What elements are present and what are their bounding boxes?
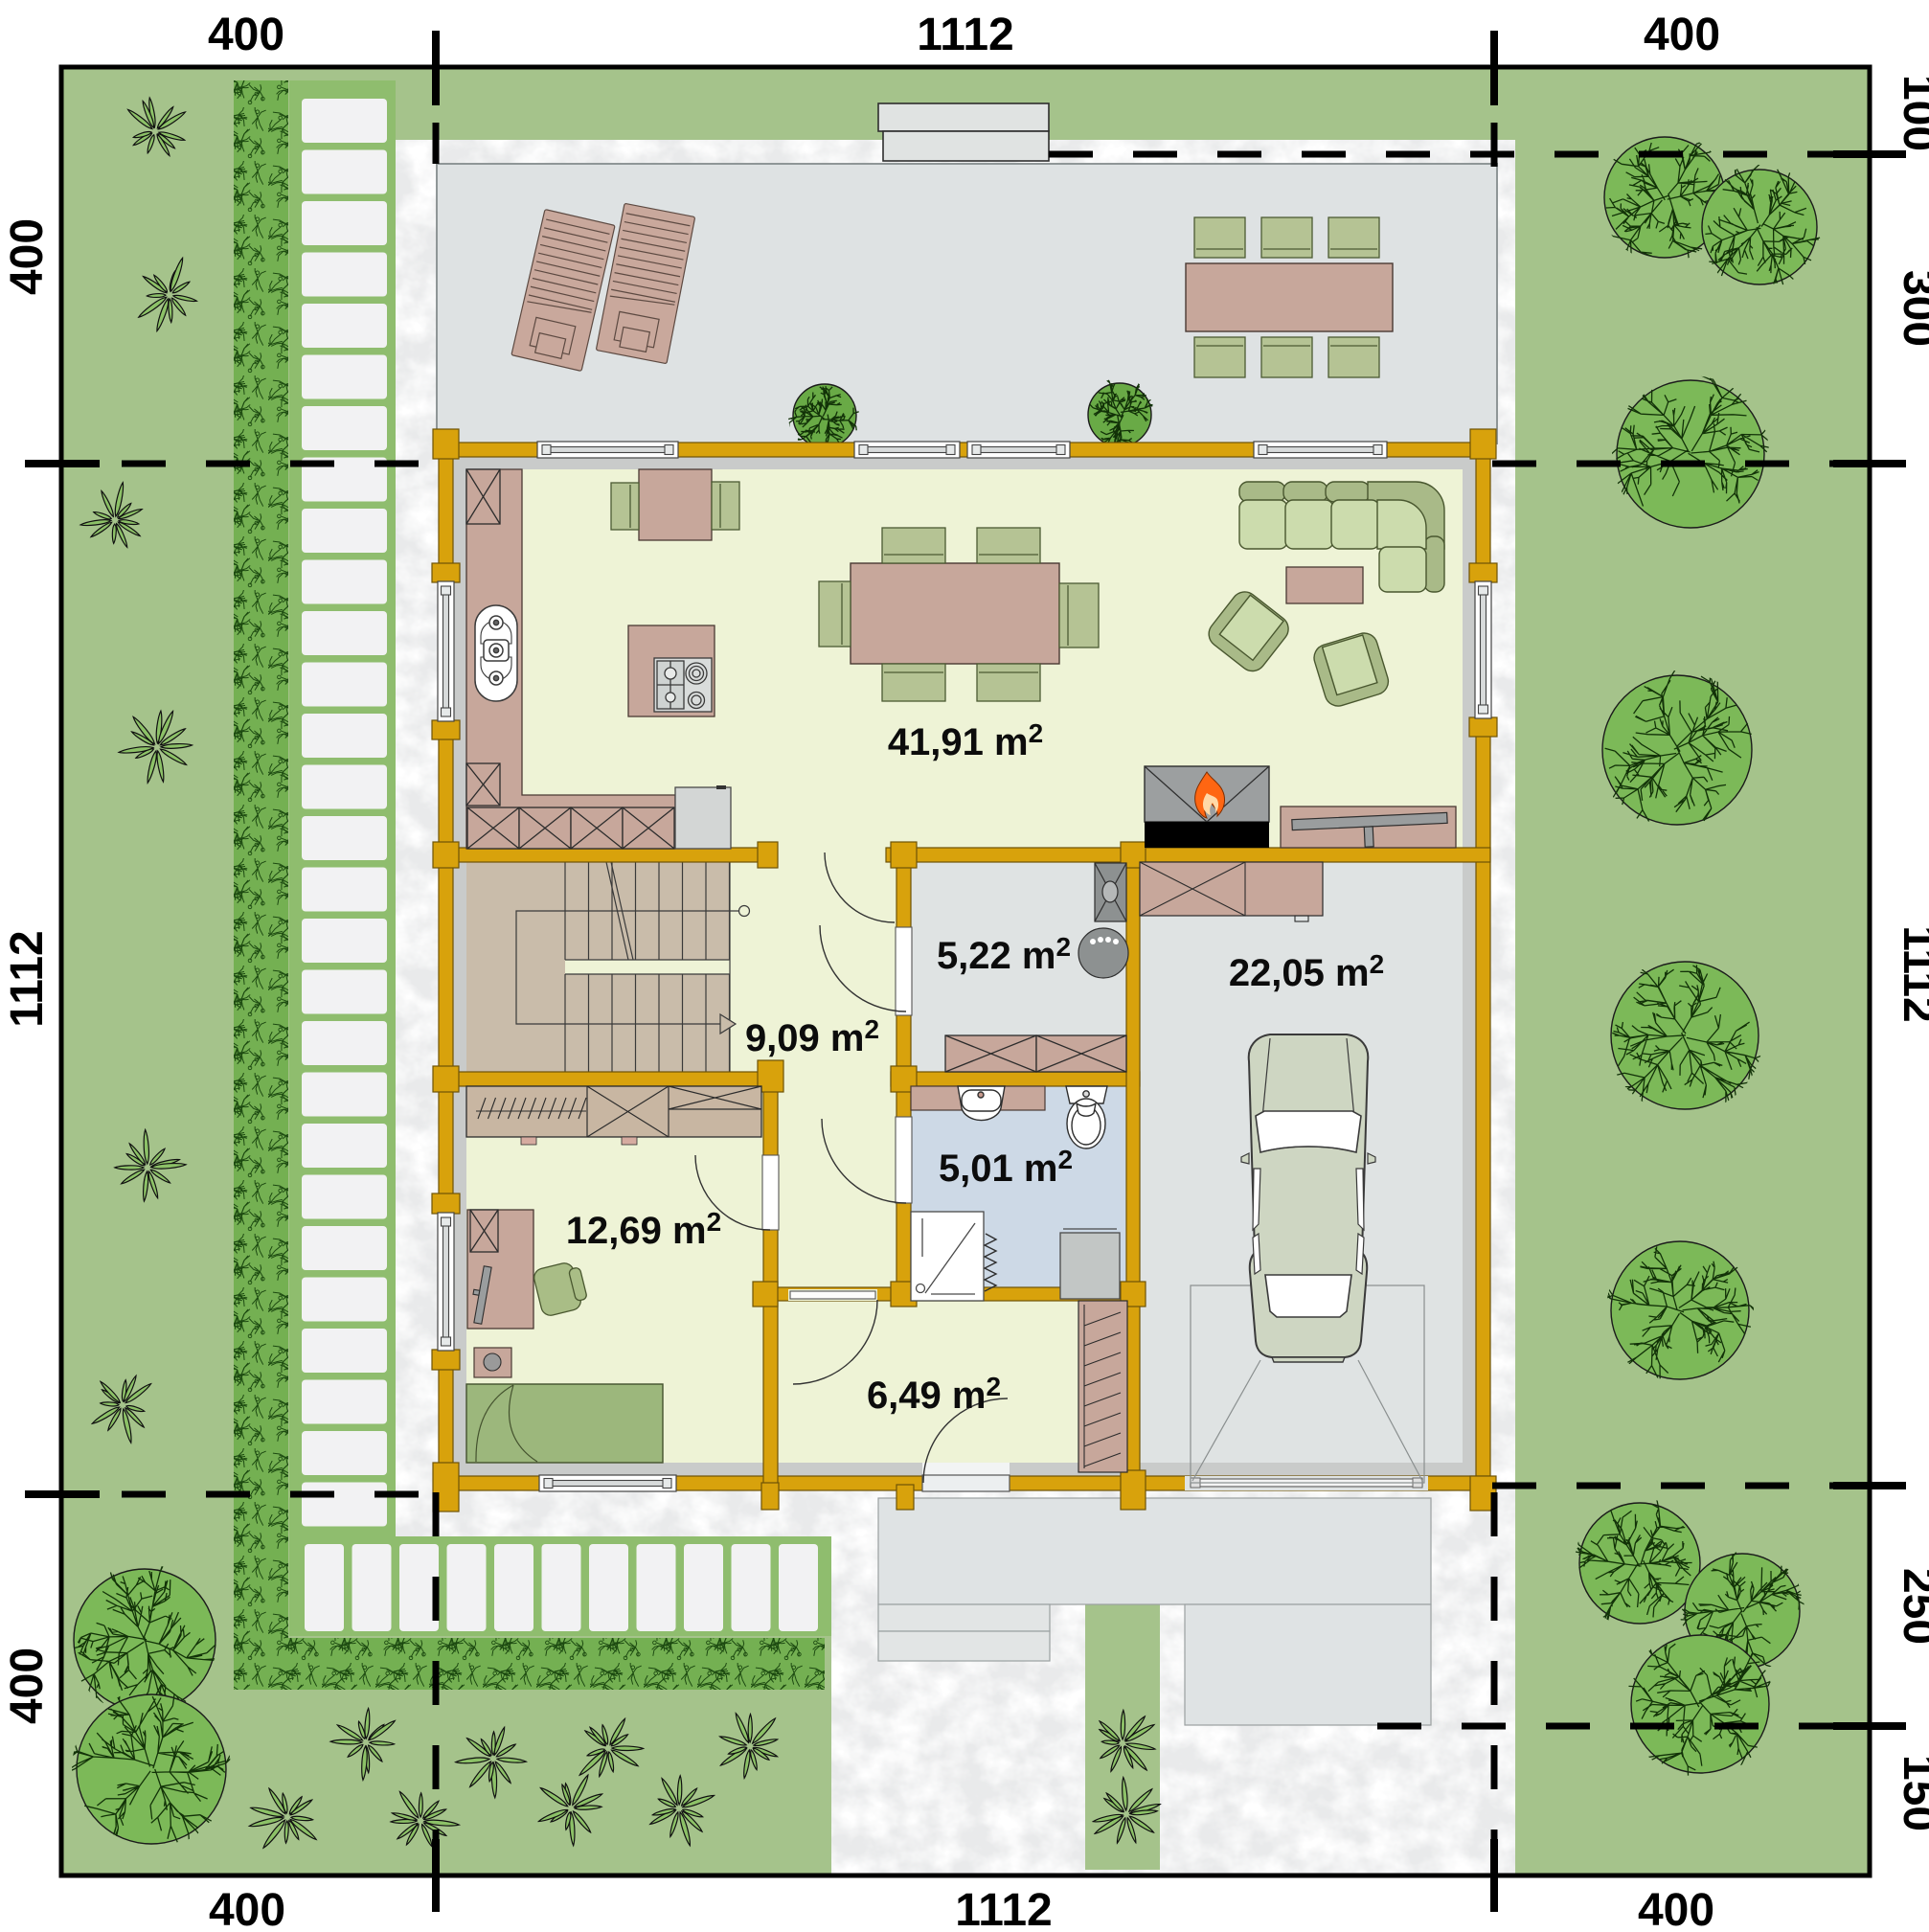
svg-text:400: 400 xyxy=(1638,1885,1714,1932)
svg-text:1112: 1112 xyxy=(2,930,53,1027)
svg-text:150: 150 xyxy=(1894,1755,1929,1831)
svg-text:400: 400 xyxy=(209,1885,285,1932)
svg-text:1112: 1112 xyxy=(955,1885,1052,1932)
svg-text:6,49 m2: 6,49 m2 xyxy=(867,1372,1001,1417)
svg-text:300: 300 xyxy=(1894,270,1929,347)
svg-text:5,01 m2: 5,01 m2 xyxy=(939,1145,1073,1190)
svg-text:400: 400 xyxy=(1644,10,1720,60)
svg-text:5,22 m2: 5,22 m2 xyxy=(937,932,1071,977)
svg-text:12,69 m2: 12,69 m2 xyxy=(566,1207,721,1252)
svg-text:400: 400 xyxy=(2,1648,53,1724)
svg-text:250: 250 xyxy=(1894,1568,1929,1645)
svg-text:400: 400 xyxy=(2,218,53,295)
svg-text:9,09 m2: 9,09 m2 xyxy=(745,1014,879,1059)
svg-text:1112: 1112 xyxy=(1894,925,1929,1022)
svg-text:400: 400 xyxy=(208,10,284,60)
svg-text:1112: 1112 xyxy=(917,10,1013,60)
svg-text:22,05 m2: 22,05 m2 xyxy=(1229,949,1384,994)
svg-text:41,91 m2: 41,91 m2 xyxy=(888,718,1043,763)
svg-text:100: 100 xyxy=(1894,75,1929,151)
